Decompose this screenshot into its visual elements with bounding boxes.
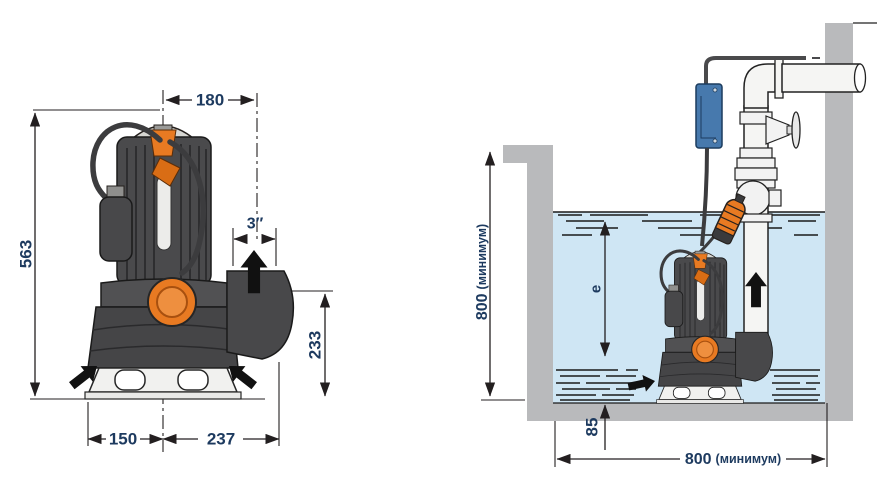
riser-pipe [744,106,768,352]
valve-handwheel [792,112,800,148]
pump-dimension-figure: 563 180 3″ 233 150 237 [0,0,889,485]
pipe-end [855,64,866,92]
dim-pit-width: 800(минимум) [685,451,781,468]
screw-icon [713,139,717,143]
screw-icon [713,88,717,92]
horizontal-pipe [782,64,860,92]
installation-diagram: 800(минимум) e 85 800(минимум) [474,23,878,468]
pit-wall [503,145,553,163]
dim-min-level: 85 [583,418,602,437]
dim-discharge-height: 233 [306,331,325,359]
dim-top-width: 180 [196,91,224,110]
pipe-elbow [744,64,775,108]
pit-wall [527,163,553,404]
pump-outline-drawing: 563 180 3″ 233 150 237 [17,90,334,452]
dim-overall-height: 563 [17,240,36,268]
dim-base-right: 237 [207,430,235,449]
pit-floor [527,403,853,421]
dim-discharge-size: 3″ [247,216,264,233]
dim-pit-depth: 800(минимум) [474,224,491,320]
dim-base-left: 150 [109,430,137,449]
dim-submergence: e [588,285,605,293]
